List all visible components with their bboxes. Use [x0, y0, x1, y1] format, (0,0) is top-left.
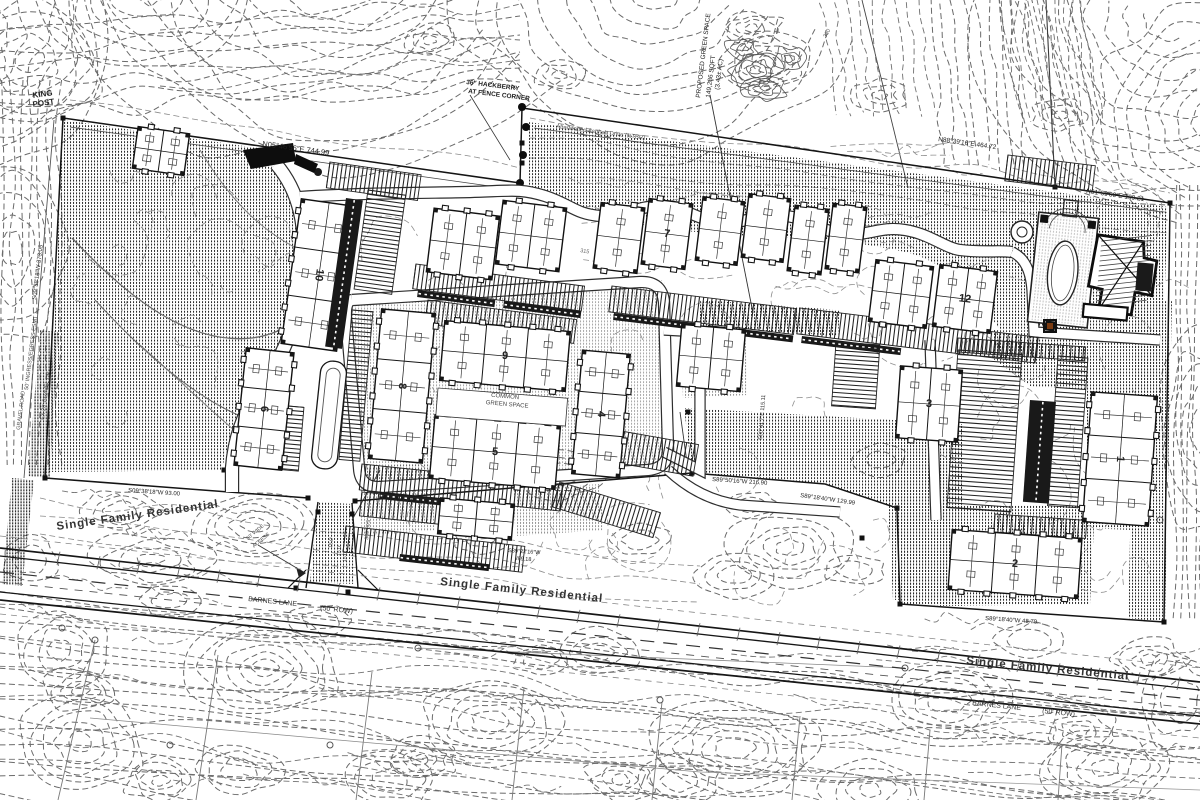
svg-text:/89.18: /89.18	[516, 556, 532, 563]
svg-text:10: 10	[312, 268, 326, 282]
svg-text:6: 6	[258, 405, 271, 412]
svg-text:5: 5	[491, 446, 498, 458]
svg-text:15.0′: 15.0′	[342, 551, 349, 562]
svg-text:15.0′: 15.0′	[328, 537, 335, 548]
svg-text:12: 12	[958, 292, 972, 305]
svg-text:2: 2	[1012, 558, 1019, 570]
svg-text:9: 9	[501, 350, 508, 362]
svg-text:1: 1	[1114, 456, 1126, 463]
svg-text:8: 8	[396, 382, 408, 389]
svg-text:3: 3	[926, 398, 933, 410]
